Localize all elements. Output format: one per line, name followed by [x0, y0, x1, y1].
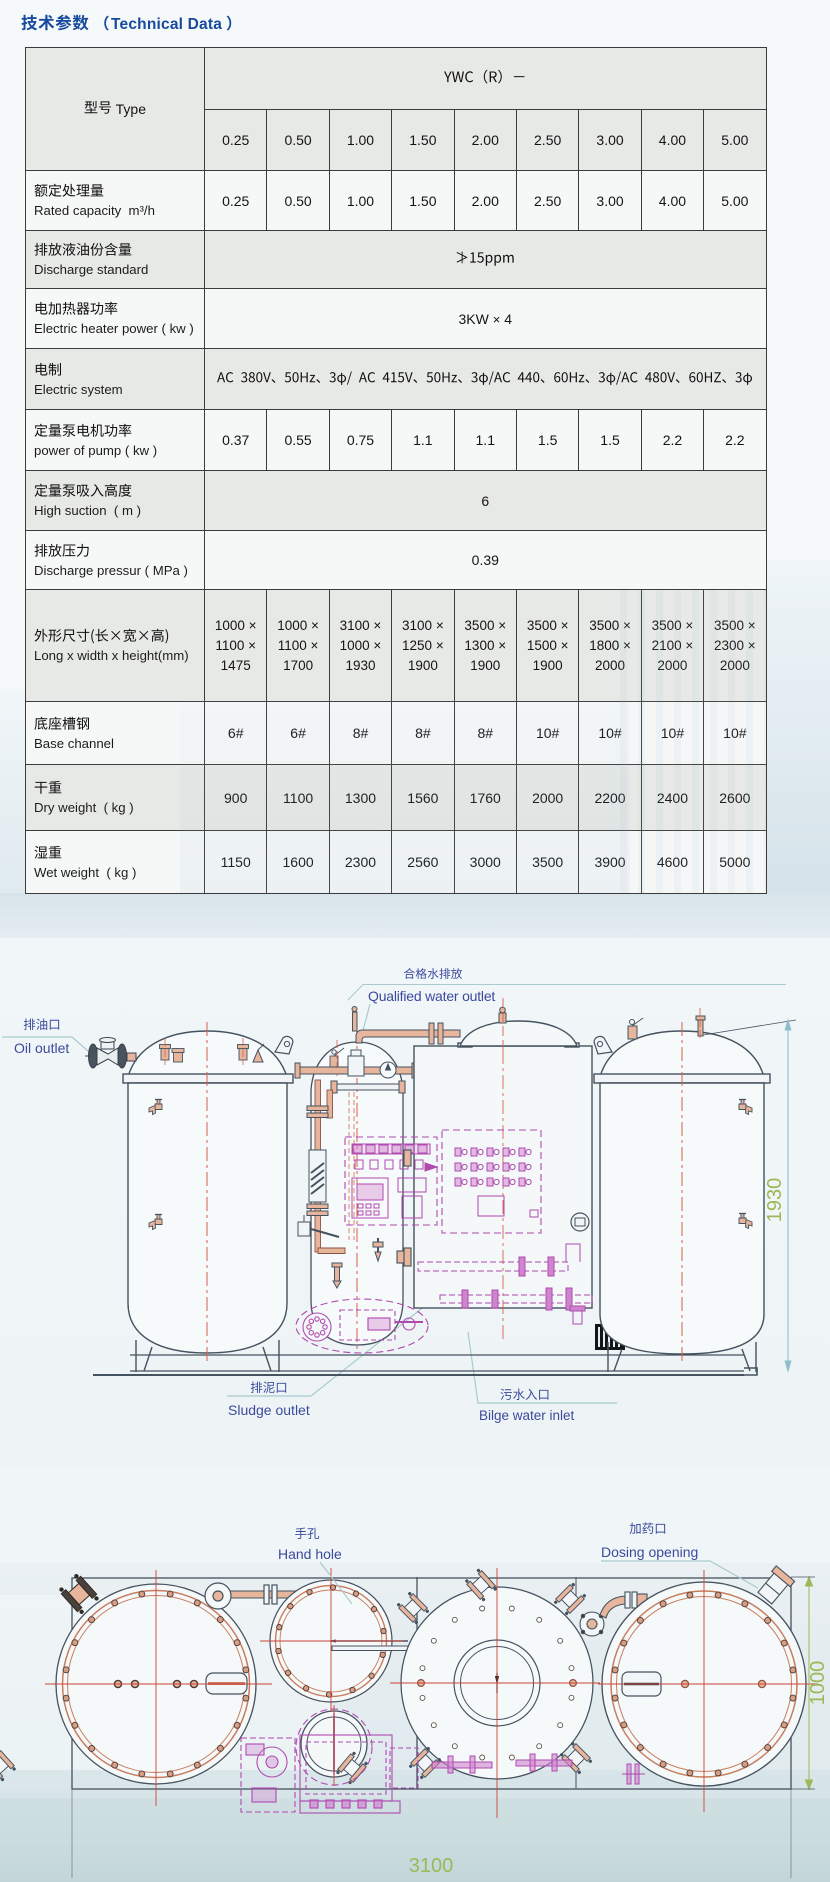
svg-text:Dosing opening: Dosing opening — [601, 1544, 698, 1560]
svg-text:1930: 1930 — [764, 1178, 786, 1223]
svg-text:3100: 3100 — [409, 1855, 454, 1877]
svg-text:Hand hole: Hand hole — [278, 1546, 342, 1562]
svg-text:Oil outlet: Oil outlet — [14, 1040, 69, 1056]
svg-text:1000: 1000 — [807, 1661, 829, 1706]
svg-text:Sludge outlet: Sludge outlet — [228, 1402, 310, 1418]
svg-text:Bilge water inlet: Bilge water inlet — [479, 1408, 575, 1423]
svg-text:Qualified water outlet: Qualified water outlet — [368, 988, 495, 1004]
